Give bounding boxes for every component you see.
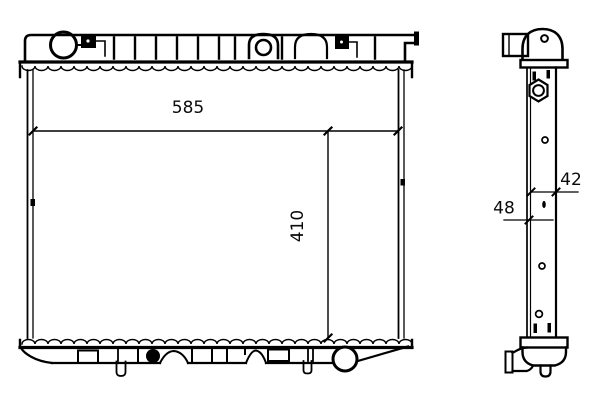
tank-dome — [295, 34, 327, 58]
top-header-scallops — [22, 66, 412, 71]
mount-block-left-pin — [86, 39, 89, 42]
bottom-header-plate — [20, 340, 412, 348]
dim-core-depth-label: 42 — [560, 170, 582, 190]
bottom-tab-right — [268, 350, 289, 362]
bottom-tab-left — [78, 351, 98, 364]
bottom-header-scallops — [22, 340, 412, 345]
top-header-end-caps — [20, 62, 412, 77]
side-hole-1 — [542, 137, 548, 143]
front-view — [20, 32, 419, 377]
outlet-elbow-cap — [506, 352, 513, 373]
bottom-tank-left-slope — [21, 348, 52, 363]
side-slot-top-left — [533, 72, 537, 81]
side-plate-left-notch — [31, 199, 36, 206]
filler-neck-opening — [256, 40, 271, 55]
bottom-stub-right — [304, 348, 314, 374]
side-bottom-flange — [521, 338, 568, 348]
mount-block-left-bracket — [96, 41, 105, 56]
core-side-plates — [28, 70, 406, 338]
side-bottom-fitting — [506, 338, 568, 377]
side-bottom-tank — [523, 348, 567, 366]
bottom-tank — [21, 347, 408, 377]
side-slot-bottom-left — [534, 324, 538, 334]
side-top-flange — [521, 60, 568, 68]
front-dimensions — [30, 128, 402, 342]
mount-block-right-pin — [340, 41, 343, 44]
outlet-port — [333, 347, 357, 371]
dim-height-label: 410 — [288, 210, 308, 242]
dim-overall-depth-label: 48 — [493, 199, 515, 219]
side-slot-bottom-right — [548, 323, 552, 333]
side-top-fitting — [503, 29, 568, 68]
top-tank — [25, 32, 419, 63]
radiator-technical-drawing: 585 410 42 48 — [0, 0, 600, 400]
side-column — [527, 68, 556, 338]
top-header-plate — [20, 62, 412, 77]
mount-block-right-bracket — [349, 42, 357, 57]
top-pipe-end-cap — [414, 32, 419, 46]
bottom-tank-hump-2 — [246, 351, 266, 364]
side-bottom-stub — [541, 366, 551, 377]
bleeder-screw — [541, 35, 548, 42]
side-slot-middle — [542, 201, 546, 208]
outlet-elbow-bottom — [513, 366, 534, 372]
side-plate-right-notch — [401, 179, 406, 186]
side-hole-3 — [536, 311, 543, 318]
drain-plug — [146, 349, 160, 363]
outlet-elbow-top — [513, 348, 528, 354]
bottom-tank-hump-1 — [160, 351, 188, 363]
dim-width-label: 585 — [172, 98, 204, 118]
side-slot-top-right — [547, 70, 551, 79]
side-hole-2 — [539, 263, 545, 269]
side-dimensions — [504, 189, 578, 224]
